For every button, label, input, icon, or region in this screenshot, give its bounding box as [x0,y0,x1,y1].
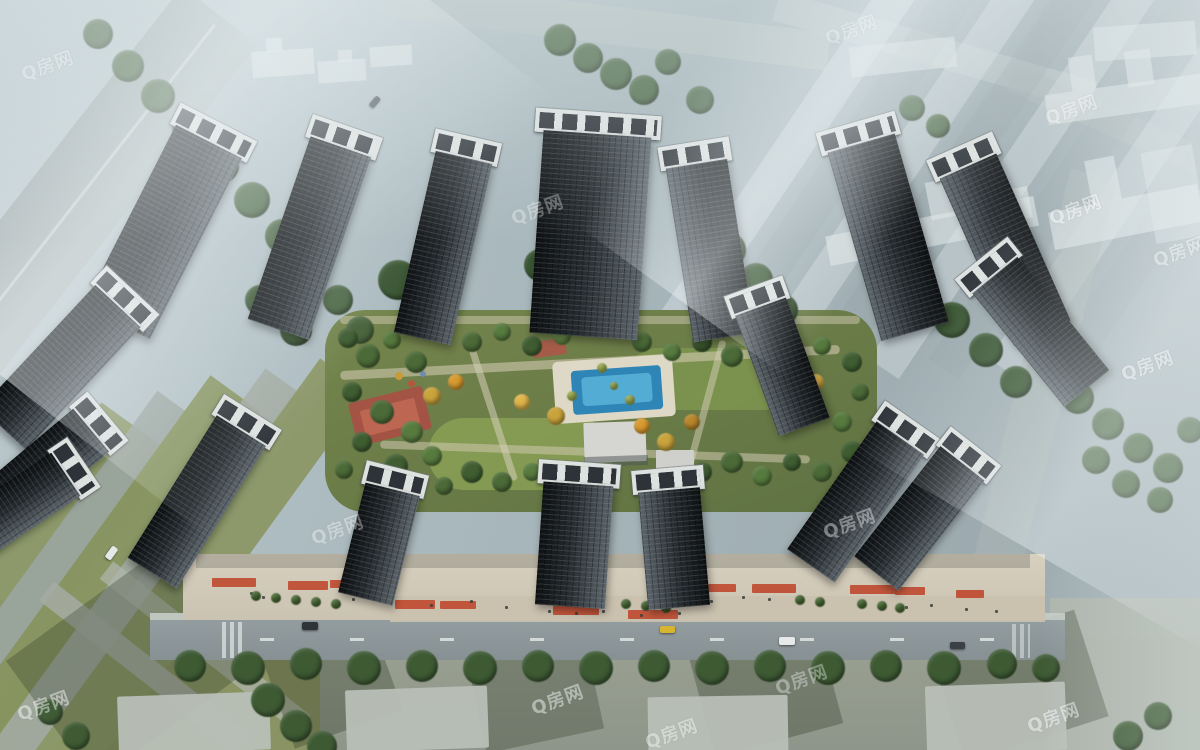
playground-dot [420,371,426,377]
person-dot [602,610,605,613]
tree [895,603,905,613]
tree [406,650,438,682]
tree [752,466,772,486]
person-dot [995,610,998,613]
tree [684,414,700,430]
pool-water-highlight [581,373,653,407]
tower [535,460,615,610]
aerial-rendering: Q房网Q房网Q房网Q房网Q房网Q房网Q房网Q房网Q房网Q房网Q房网Q房网Q房网Q… [0,0,1200,750]
person-dot [548,610,551,613]
tree [783,453,801,471]
tree [423,387,441,405]
tree [448,374,464,390]
street-road [150,620,1065,660]
tree [721,451,743,473]
tree [987,649,1017,679]
car [950,642,965,649]
tree [795,595,805,605]
awning [212,578,256,587]
tree [927,651,961,685]
tree [492,472,512,492]
tree [851,383,869,401]
lane-dash [440,638,454,641]
tree [405,351,427,373]
tree [812,462,832,482]
tree [522,650,554,682]
tree [625,395,635,405]
person-dot [768,598,771,601]
tree [251,683,285,717]
tree [462,332,482,352]
tree [231,651,265,685]
tower [636,465,710,610]
tree [347,651,381,685]
tree [815,597,825,607]
lane-dash [980,638,994,641]
tree [522,336,542,356]
plaza-step [390,596,1045,622]
tree [331,599,341,609]
tree [352,432,372,452]
tree [547,407,565,425]
person-dot [742,596,745,599]
lane-dash [260,638,274,641]
tree [290,648,322,680]
awning [288,581,328,590]
tree [610,382,618,390]
tree [291,595,301,605]
tree [370,400,394,424]
tree [422,446,442,466]
person-dot [640,614,643,617]
tree [174,650,206,682]
tree [857,599,867,609]
lane-dash [350,638,364,641]
crosswalk [1012,624,1030,658]
person-dot [430,604,433,607]
tree [335,461,353,479]
tree [657,433,675,451]
tree [342,382,362,402]
car [660,626,675,633]
awning [850,585,898,594]
tree [401,421,423,443]
person-dot [678,612,681,615]
person-dot [930,604,933,607]
tree [461,461,483,483]
awning [956,590,984,598]
person-dot [575,612,578,615]
tree [832,412,852,432]
tree [311,597,321,607]
tree [271,593,281,603]
tree [251,591,261,601]
tree [383,331,401,349]
lane-dash [710,638,724,641]
lane-dash [530,638,544,641]
tower-body [638,487,710,610]
person-dot [965,608,968,611]
haze-veil-top [0,0,1200,240]
tree [663,343,681,361]
tree [597,363,607,373]
tree [870,650,902,682]
tree [579,651,613,685]
tree [62,722,90,750]
tree [621,599,631,609]
tree [842,352,862,372]
lane-dash [620,638,634,641]
tree [721,345,743,367]
car [302,622,318,630]
tree [695,651,729,685]
playground-dot [395,372,403,380]
person-dot [470,600,473,603]
tree [514,394,530,410]
person-dot [710,600,713,603]
tree [877,601,887,611]
tree [634,418,650,434]
lane-dash [890,638,904,641]
playground-dot [408,380,415,387]
lane-dash [800,638,814,641]
roof-block [345,686,489,750]
tree [493,323,511,341]
tower-body [535,482,613,610]
roof-block [117,691,271,750]
person-dot [905,606,908,609]
tree [280,710,312,742]
awning [628,610,678,619]
person-dot [352,598,355,601]
tree [567,391,577,401]
tree [638,650,670,682]
awning [395,600,435,609]
person-dot [262,596,265,599]
tree [463,651,497,685]
car [779,637,795,645]
person-dot [505,606,508,609]
awning [752,584,796,593]
tree [435,477,453,495]
